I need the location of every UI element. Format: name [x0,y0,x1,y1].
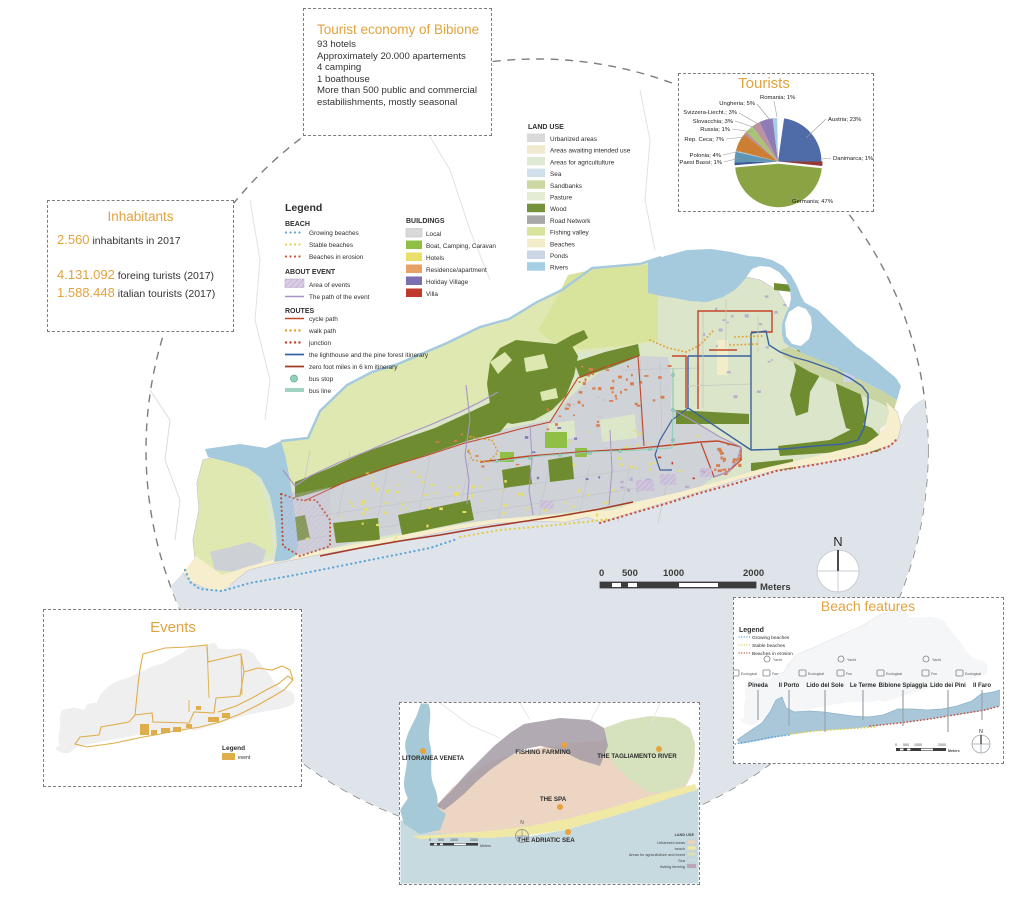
svg-text:Ponds: Ponds [550,253,568,260]
svg-text:N: N [979,729,983,735]
svg-text:Le Terme: Le Terme [850,683,877,689]
svg-text:Meters: Meters [760,582,791,593]
svg-text:Legend: Legend [285,202,322,214]
svg-text:THE SPA: THE SPA [540,796,567,803]
svg-text:Yacht: Yacht [847,658,856,662]
svg-text:Ecological: Ecological [741,672,757,676]
svg-text:Events: Events [150,619,196,636]
svg-text:Rivers: Rivers [550,265,568,272]
svg-text:Svizzera-Liecht.; 3%: Svizzera-Liecht.; 3% [683,110,737,116]
svg-text:Ecological: Ecological [808,672,824,676]
svg-text:beach: beach [675,847,685,851]
svg-text:Yacht: Yacht [932,658,941,662]
svg-text:bus line: bus line [309,388,331,395]
svg-text:junction: junction [308,340,331,347]
svg-text:Areas awaiting intended use: Areas awaiting intended use [550,148,631,155]
svg-text:Tourists: Tourists [738,75,790,92]
svg-text:Germania; 47%: Germania; 47% [792,199,834,205]
svg-text:Area of events: Area of events [309,282,350,289]
svg-text:2000: 2000 [470,838,478,842]
svg-text:Ecological: Ecological [886,672,902,676]
svg-text:Growing beaches: Growing beaches [752,635,790,641]
svg-text:cycle path: cycle path [309,316,338,323]
svg-text:N: N [520,820,524,826]
svg-text:N: N [833,534,842,549]
svg-text:Sea: Sea [550,171,562,178]
svg-text:1000: 1000 [663,568,684,579]
svg-text:Romania; 1%: Romania; 1% [760,95,796,101]
svg-text:Urbanized areas: Urbanized areas [657,841,685,845]
svg-text:2000: 2000 [938,743,946,747]
svg-text:Pineda: Pineda [748,683,768,689]
svg-text:BUILDINGS: BUILDINGS [406,218,445,225]
svg-text:Russia; 1%: Russia; 1% [700,127,731,133]
svg-text:0: 0 [429,838,431,842]
svg-text:LAND USE: LAND USE [675,833,695,837]
svg-text:FISHING FARMING: FISHING FARMING [515,749,571,756]
svg-text:0: 0 [599,568,604,579]
svg-text:Beach features: Beach features [821,598,915,614]
svg-text:Sandbanks: Sandbanks [550,183,582,190]
svg-text:event: event [238,755,251,761]
svg-text:Local: Local [426,231,441,238]
svg-text:Areas for agricultulture and f: Areas for agricultulture and forest [629,853,686,857]
svg-text:Fishing valley: Fishing valley [550,230,590,237]
svg-text:0: 0 [895,743,897,747]
svg-text:Meters: Meters [948,749,960,753]
svg-text:Il Porto: Il Porto [779,683,800,689]
svg-text:LITORANEA VENETA: LITORANEA VENETA [402,755,465,762]
svg-text:Growing beaches: Growing beaches [309,230,359,237]
svg-text:Legend: Legend [739,627,764,634]
svg-text:BEACH: BEACH [285,221,310,228]
svg-text:Wood: Wood [550,206,567,213]
svg-text:Sea: Sea [678,859,686,863]
svg-text:Areas for agricultulture: Areas for agricultulture [550,159,615,166]
svg-text:ROUTES: ROUTES [285,308,315,315]
svg-text:Austria; 23%: Austria; 23% [828,117,862,123]
svg-text:Holiday Village: Holiday Village [426,279,469,286]
svg-text:Residence/apartment: Residence/apartment [426,267,487,274]
svg-text:the lighthouse and the pine fo: the lighthouse and the pine forest itine… [309,352,429,359]
svg-text:THE TAGLIAMENTO RIVER: THE TAGLIAMENTO RIVER [597,753,677,760]
svg-text:Boat, Camping, Caravan: Boat, Camping, Caravan [426,243,496,250]
svg-text:LAND USE: LAND USE [528,124,564,131]
svg-text:Paesi Bassi; 1%: Paesi Bassi; 1% [679,160,722,166]
svg-text:Meters: Meters [480,844,491,848]
svg-text:Urbanized areas: Urbanized areas [550,136,597,143]
svg-text:Hotels: Hotels [426,255,444,262]
svg-text:Beaches: Beaches [550,241,575,248]
svg-text:Polonia; 4%: Polonia; 4% [690,153,722,159]
svg-text:1000: 1000 [450,838,458,842]
svg-text:Lido dei Pini: Lido dei Pini [930,683,966,689]
svg-text:Stable beaches: Stable beaches [752,643,786,649]
svg-text:Il Faro: Il Faro [973,683,991,689]
svg-text:THE ADRIATIC SEA: THE ADRIATIC SEA [517,837,575,844]
svg-text:Beaches in erosion: Beaches in erosion [309,254,364,261]
svg-text:Road Network: Road Network [550,218,591,225]
svg-text:500: 500 [622,568,638,579]
svg-text:Slovacchia; 3%: Slovacchia; 3% [693,119,734,125]
svg-text:Fun: Fun [931,672,937,676]
svg-text:fishing farming: fishing farming [660,865,685,869]
svg-text:Beaches in erosion: Beaches in erosion [752,651,793,657]
svg-text:Yacht: Yacht [773,658,782,662]
svg-text:500: 500 [903,743,909,747]
svg-text:bus stop: bus stop [309,376,334,383]
svg-text:Fun: Fun [846,672,852,676]
svg-text:Pasture: Pasture [550,195,572,202]
svg-text:walk path: walk path [308,328,336,335]
svg-text:Ecological: Ecological [965,672,981,676]
svg-text:Fun: Fun [772,672,778,676]
svg-text:500: 500 [438,838,444,842]
svg-text:ABOUT EVENT: ABOUT EVENT [285,269,336,276]
svg-text:Legend: Legend [222,745,245,752]
svg-text:Bibione Spiaggia: Bibione Spiaggia [879,683,928,689]
svg-text:The path of the event: The path of the event [309,294,370,301]
svg-text:Danimarca; 1%: Danimarca; 1% [833,156,874,162]
svg-text:Lido del Sole: Lido del Sole [806,683,844,689]
svg-text:Villa: Villa [426,291,438,298]
svg-text:Stable beaches: Stable beaches [309,242,353,249]
svg-text:1000: 1000 [914,743,922,747]
svg-text:Ungheria; 5%: Ungheria; 5% [719,101,755,107]
svg-text:Rep. Ceca; 7%: Rep. Ceca; 7% [684,137,724,143]
svg-text:2000: 2000 [743,568,764,579]
svg-text:zero foot miles in 6 km itiner: zero foot miles in 6 km itinerary [309,364,398,371]
